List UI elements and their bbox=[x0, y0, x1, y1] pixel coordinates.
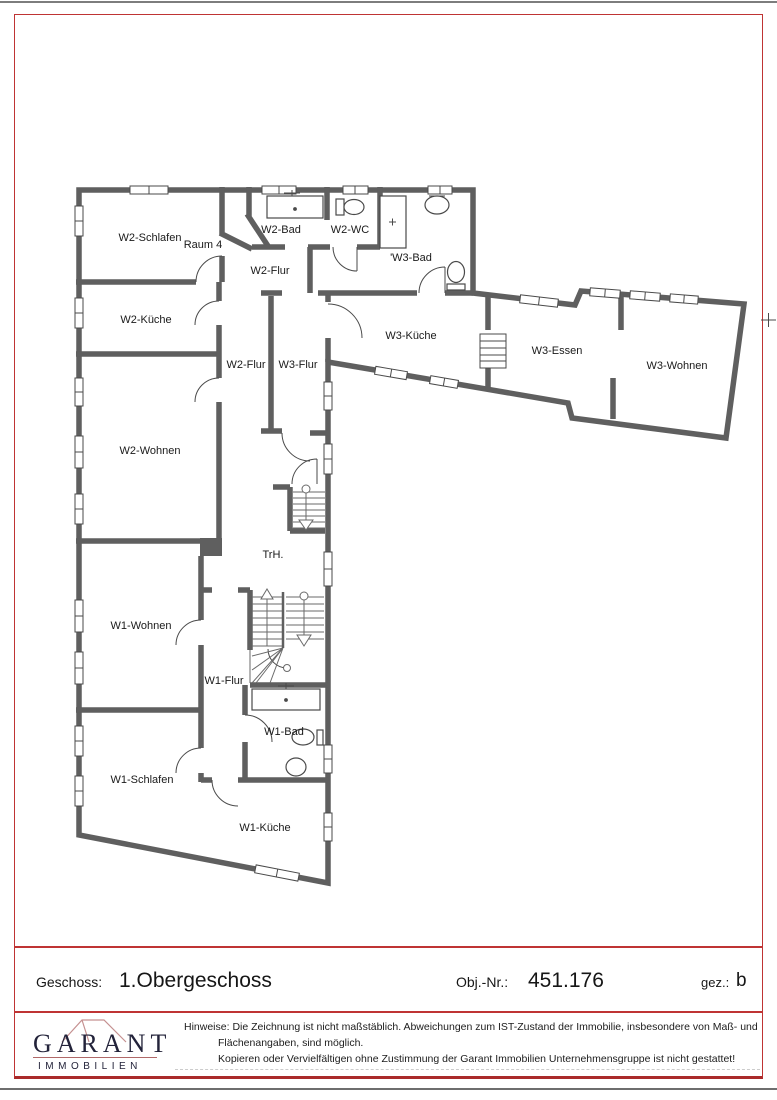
logo-underline bbox=[33, 1057, 157, 1058]
room-label-w2-wohnen: W2-Wohnen bbox=[120, 445, 181, 457]
room-label-w3-wohnen: W3-Wohnen bbox=[647, 360, 708, 372]
objnr-value: 451.176 bbox=[528, 969, 604, 993]
gez-label: gez.: bbox=[701, 975, 729, 990]
legal-notice: Hinweise: Die Zeichnung ist nicht maßstä… bbox=[184, 1019, 764, 1067]
room-label-w2-wc: W2-WC bbox=[331, 224, 370, 236]
scanned-floorplan-page: W2-Schlafen Raum 4 W2-Bad W2-WC 'W3-Bad … bbox=[0, 0, 777, 1100]
room-label-w3-essen: W3-Essen bbox=[532, 345, 583, 357]
legal-line-2: Flächenangaben, sind möglich. bbox=[218, 1035, 764, 1051]
objnr-label: Obj.-Nr.: bbox=[456, 974, 508, 990]
footer-block: GARANT IMMOBILIEN Hinweise: Die Zeichnun… bbox=[14, 1012, 763, 1079]
room-label-w2-schlafen: W2-Schlafen bbox=[119, 232, 182, 244]
logo-wordmark: GARANT bbox=[33, 1029, 171, 1059]
hinweise-text-1: Die Zeichnung ist nicht maßstäblich. Abw… bbox=[232, 1021, 757, 1033]
room-label-w1-schlafen: W1-Schlafen bbox=[111, 774, 174, 786]
registration-mark bbox=[761, 313, 776, 327]
room-label-w1-flur: W1-Flur bbox=[204, 675, 243, 687]
bathroom-fixtures bbox=[252, 190, 465, 776]
room-label-trh: TrH. bbox=[263, 549, 284, 561]
room-label-w1-kueche: W1-Küche bbox=[239, 822, 290, 834]
legal-line-3: Kopieren oder Vervielfältigen ohne Zusti… bbox=[218, 1051, 764, 1067]
room-label-w3-bad: 'W3-Bad bbox=[390, 252, 432, 264]
geschoss-value: 1.Obergeschoss bbox=[119, 969, 272, 993]
room-label-w2-flur-upper: W2-Flur bbox=[250, 265, 289, 277]
gez-value: b bbox=[736, 970, 747, 992]
room-label-w2-kueche: W2-Küche bbox=[120, 314, 171, 326]
wall-notch bbox=[200, 538, 222, 556]
footer-dotted-line bbox=[175, 1069, 760, 1070]
room-label-w3-kueche: W3-Küche bbox=[385, 330, 436, 342]
hinweise-label: Hinweise: bbox=[184, 1021, 230, 1033]
garant-logo: GARANT IMMOBILIEN bbox=[31, 1018, 181, 1076]
room-label-w2-bad: W2-Bad bbox=[261, 224, 301, 236]
room-label-w1-wohnen: W1-Wohnen bbox=[111, 620, 172, 632]
balcony-steps-symbol bbox=[480, 334, 506, 368]
legal-line-1: Hinweise: Die Zeichnung ist nicht maßstä… bbox=[184, 1019, 764, 1035]
room-label-w2-flur: W2-Flur bbox=[226, 359, 265, 371]
title-block: Geschoss: 1.Obergeschoss Obj.-Nr.: 451.1… bbox=[14, 947, 763, 1012]
floor-plan-drawing: W2-Schlafen Raum 4 W2-Bad W2-WC 'W3-Bad … bbox=[0, 0, 777, 1100]
room-label-w3-flur: W3-Flur bbox=[278, 359, 317, 371]
geschoss-label: Geschoss: bbox=[36, 974, 102, 990]
room-label-w1-bad: W1-Bad bbox=[264, 726, 304, 738]
logo-subtitle: IMMOBILIEN bbox=[38, 1061, 142, 1072]
room-label-raum-4: Raum 4 bbox=[184, 239, 223, 251]
